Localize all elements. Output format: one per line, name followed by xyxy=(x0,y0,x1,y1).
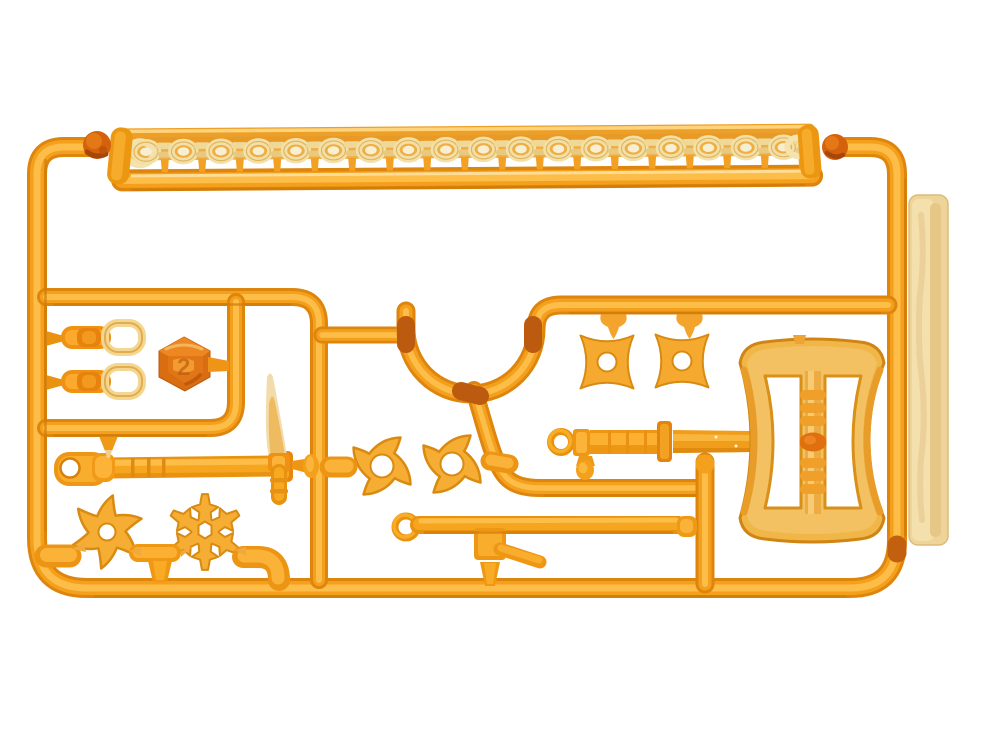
svg-text:2: 2 xyxy=(177,354,190,381)
